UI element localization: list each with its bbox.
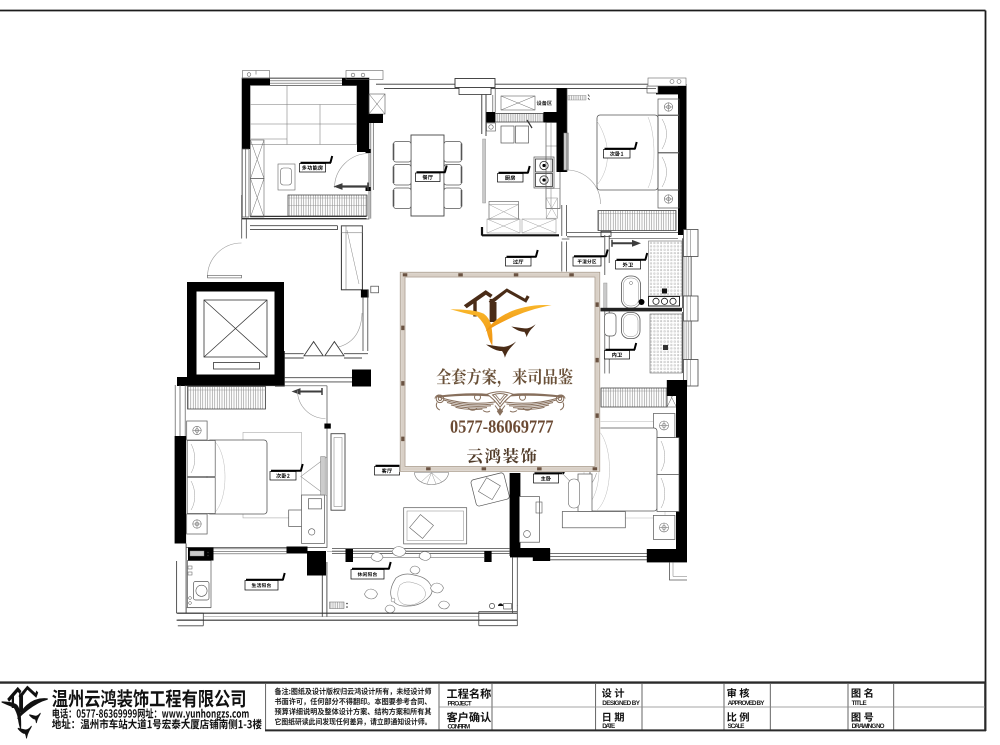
svg-text:PROJECT: PROJECT <box>448 701 472 708</box>
svg-text:TITLE: TITLE <box>852 700 867 707</box>
svg-text:DRAWING NO: DRAWING NO <box>852 723 885 730</box>
svg-text:DATE: DATE <box>602 723 615 730</box>
svg-text:APPROVED BY: APPROVED BY <box>728 700 766 707</box>
svg-text:CONFIRM: CONFIRM <box>448 723 471 730</box>
svg-text:SCALE: SCALE <box>728 723 745 730</box>
svg-text:DESIGNED BY: DESIGNED BY <box>602 700 641 707</box>
